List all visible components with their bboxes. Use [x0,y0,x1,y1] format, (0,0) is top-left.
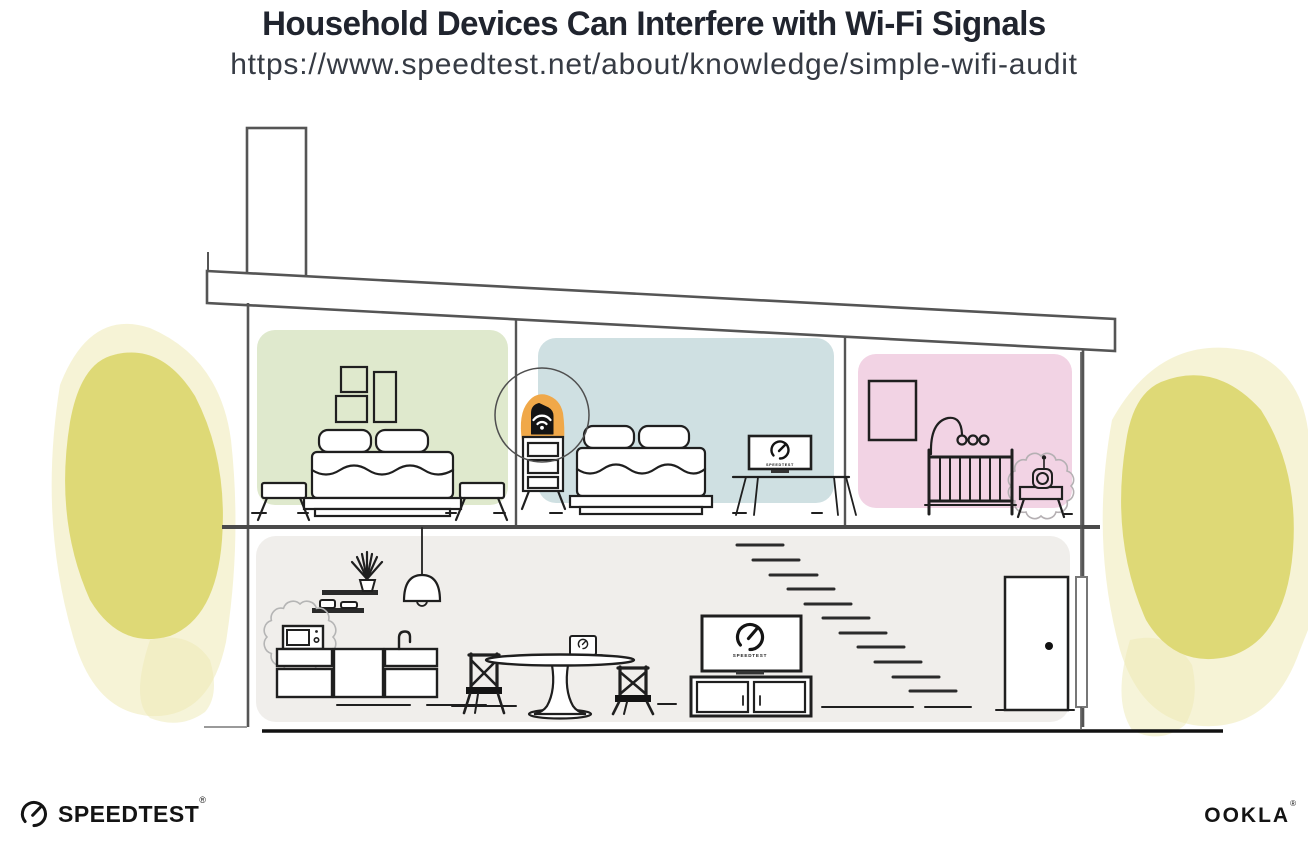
speedtest-logo: SPEEDTEST® [18,798,206,830]
downspout [1076,577,1087,707]
microwave-icon [283,626,323,649]
tv-unit: SPEEDTEST [691,616,811,716]
chimney [247,128,306,280]
monitor-label: SPEEDTEST [766,463,794,467]
media-console [691,677,811,716]
foliage-left [52,324,236,723]
ookla-trademark: ® [1290,799,1296,808]
bowl [341,602,357,608]
house-illustration: SPEEDTEST [0,0,1308,861]
tv-stand [736,671,764,675]
speedtest-trademark: ® [199,795,206,805]
door-knob [1045,642,1053,650]
speedtest-gauge-icon [18,798,50,830]
bowl [320,600,335,608]
tv-label: SPEEDTEST [733,653,768,658]
ookla-logo: OOKLA® [1204,804,1296,828]
foliage-right [1103,348,1308,737]
ookla-wordmark: OOKLA [1204,804,1290,827]
monitor-stand [771,470,789,473]
door [996,577,1074,710]
speedtest-wordmark: SPEEDTEST [58,801,199,827]
